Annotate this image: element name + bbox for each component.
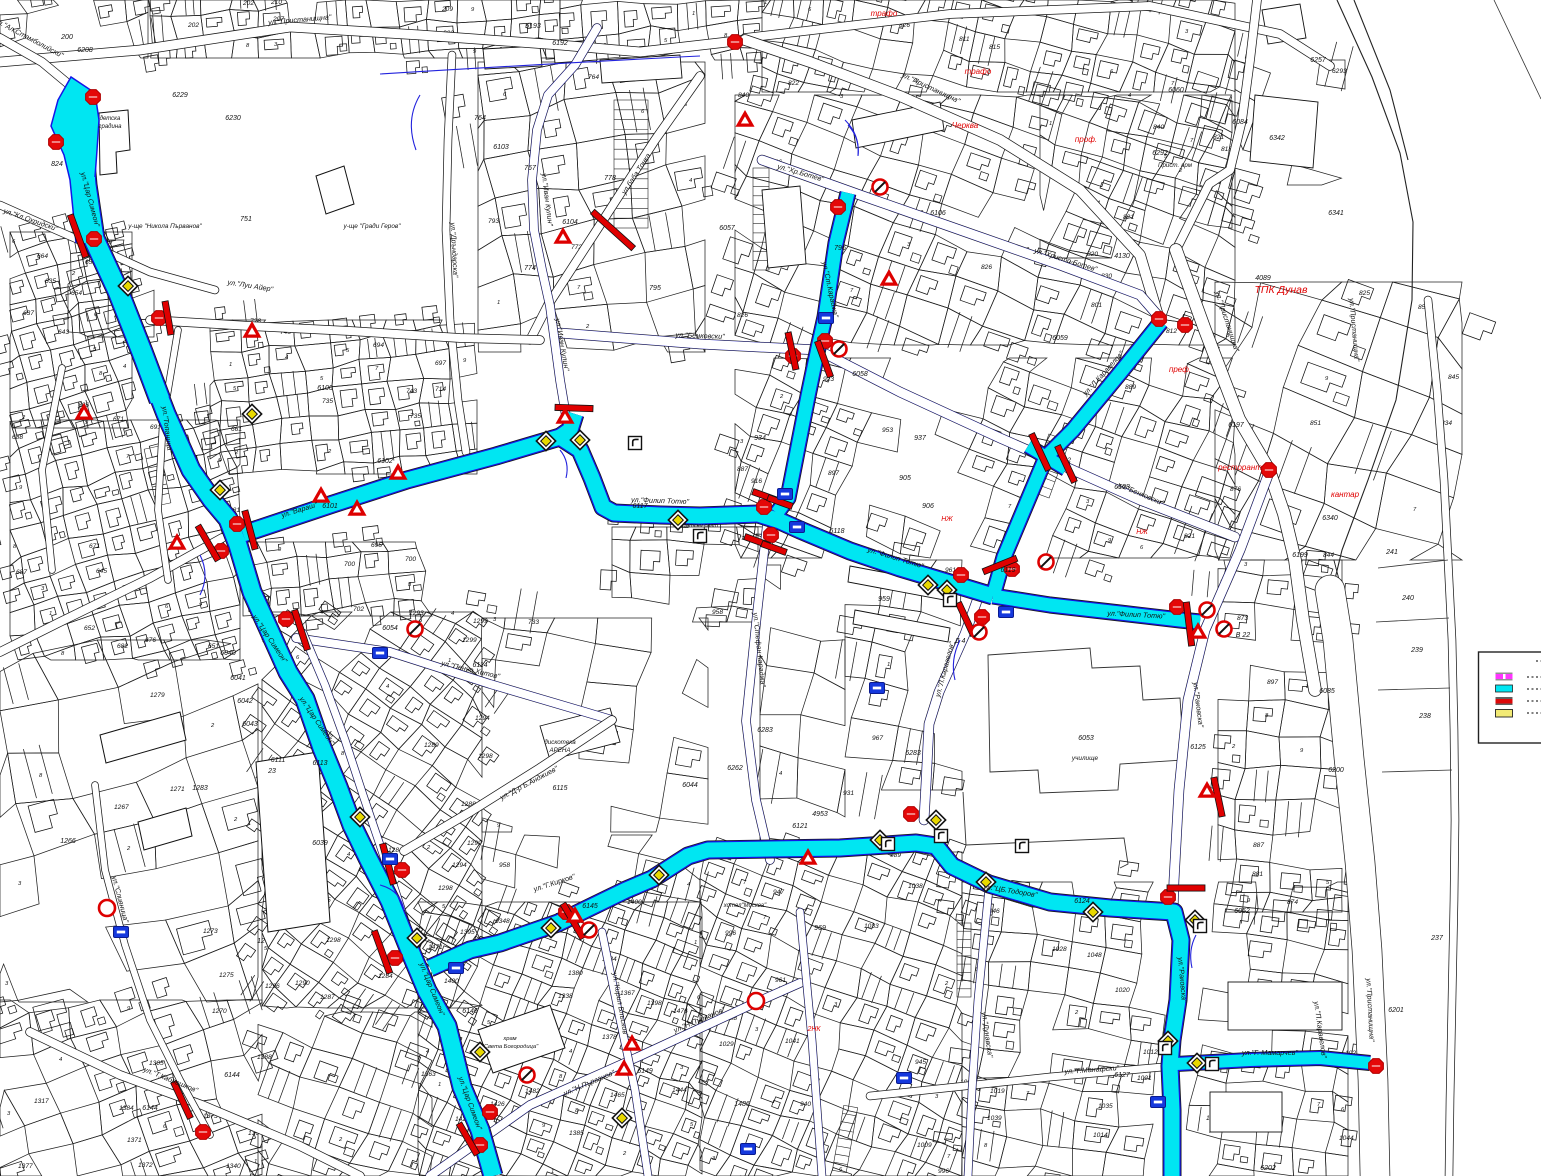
svg-text:947: 947 [773, 889, 784, 896]
svg-text:1020: 1020 [1115, 987, 1130, 994]
svg-text:967: 967 [872, 735, 883, 742]
svg-text:931: 931 [843, 790, 854, 797]
svg-text:1271: 1271 [170, 786, 185, 793]
svg-text:трафо: трафо [965, 67, 992, 76]
svg-text:1270: 1270 [212, 1008, 227, 1015]
svg-text:844: 844 [1323, 552, 1334, 559]
svg-text:764: 764 [588, 74, 599, 81]
svg-text:887: 887 [1253, 842, 1264, 849]
svg-text:826: 826 [737, 312, 748, 319]
svg-text:градина: градина [99, 124, 123, 130]
svg-text:6230: 6230 [225, 115, 241, 122]
svg-text:4: 4 [451, 611, 454, 617]
svg-text:996: 996 [938, 1168, 949, 1175]
svg-text:23: 23 [267, 768, 276, 775]
svg-text:6121: 6121 [792, 823, 808, 830]
svg-text:826: 826 [981, 264, 992, 271]
svg-text:751: 751 [240, 216, 252, 223]
svg-text:671: 671 [89, 543, 100, 550]
svg-text:6149: 6149 [637, 1068, 653, 1075]
svg-text:1: 1 [497, 300, 500, 306]
svg-text:1296: 1296 [265, 983, 280, 990]
svg-text:937: 937 [914, 435, 927, 442]
svg-text:1: 1 [49, 611, 52, 617]
svg-text:1465: 1465 [610, 1092, 625, 1099]
svg-text:1348: 1348 [495, 918, 510, 925]
svg-text:637: 637 [23, 310, 34, 317]
svg-text:1029: 1029 [719, 1041, 734, 1048]
svg-text:200: 200 [60, 34, 73, 41]
svg-text:796: 796 [834, 245, 846, 252]
svg-text:4: 4 [569, 1049, 572, 1055]
svg-text:6101: 6101 [322, 503, 338, 510]
svg-text:6293: 6293 [1332, 68, 1347, 75]
svg-text:1486: 1486 [734, 1101, 750, 1108]
svg-text:238: 238 [1418, 713, 1431, 720]
svg-text:1377: 1377 [18, 1163, 33, 1170]
svg-text:2НК: 2НК [806, 1026, 821, 1033]
svg-text:241: 241 [1385, 549, 1398, 556]
svg-text:874: 874 [1287, 899, 1298, 906]
svg-text:хотел"Москва": хотел"Москва" [723, 903, 767, 909]
svg-text:209: 209 [441, 6, 453, 13]
svg-text:945: 945 [915, 1059, 926, 1066]
svg-text:6059: 6059 [1052, 335, 1068, 342]
svg-text:916: 916 [751, 478, 762, 485]
svg-text:897: 897 [828, 470, 839, 477]
svg-text:кантар: кантар [1331, 490, 1360, 499]
svg-text:1298: 1298 [478, 753, 493, 760]
svg-text:ул."Бенковски": ул."Бенковски" [674, 330, 725, 341]
svg-text:1009: 1009 [917, 1142, 932, 1149]
svg-text:1014: 1014 [1093, 1132, 1108, 1139]
svg-text:6124: 6124 [1074, 898, 1090, 905]
svg-text:"Света Богородица": "Света Богородица" [482, 1044, 539, 1050]
svg-text:6229: 6229 [172, 92, 188, 99]
svg-text:996: 996 [725, 930, 736, 937]
svg-text:6039: 6039 [312, 840, 328, 847]
svg-text:1299: 1299 [473, 618, 488, 625]
svg-text:961: 961 [775, 977, 786, 984]
svg-text:детска: детска [100, 116, 121, 122]
svg-text:1041: 1041 [785, 1038, 800, 1045]
svg-text:851: 851 [1310, 420, 1321, 427]
svg-text:Прист. арм: Прист. арм [1158, 162, 1193, 169]
svg-text:ТПК Дунав: ТПК Дунав [1255, 284, 1309, 296]
svg-text:897: 897 [1267, 679, 1278, 686]
svg-text:4: 4 [687, 882, 690, 888]
svg-text:821: 821 [1213, 134, 1224, 141]
svg-text:202: 202 [187, 22, 199, 29]
svg-text:1019: 1019 [990, 1088, 1005, 1095]
svg-text:1385: 1385 [569, 1130, 584, 1137]
svg-text:6197: 6197 [1228, 422, 1245, 429]
svg-text:1340: 1340 [226, 1163, 241, 1170]
svg-text:училище: училище [1071, 755, 1099, 762]
svg-text:881: 881 [1252, 871, 1263, 878]
svg-text:664: 664 [37, 253, 48, 260]
svg-text:237: 237 [1430, 935, 1444, 942]
svg-text:6341: 6341 [1328, 210, 1344, 217]
svg-text:1279: 1279 [150, 692, 165, 699]
svg-text:6208: 6208 [77, 47, 93, 54]
svg-text:6042: 6042 [237, 698, 253, 705]
svg-text:1400: 1400 [627, 899, 642, 906]
svg-text:940: 940 [800, 1101, 811, 1108]
svg-text:845: 845 [1448, 374, 1459, 381]
svg-text:1048: 1048 [1087, 952, 1102, 959]
svg-text:Черква: Черква [952, 121, 979, 130]
svg-text:873: 873 [1237, 615, 1248, 622]
svg-text:812: 812 [1166, 328, 1177, 335]
svg-text:1: 1 [692, 11, 695, 17]
svg-text:6060: 6060 [1168, 87, 1184, 94]
svg-text:6144: 6144 [224, 1072, 240, 1079]
svg-text:6200: 6200 [1328, 767, 1344, 774]
svg-text:6119: 6119 [1000, 567, 1015, 574]
svg-text:4: 4 [386, 684, 389, 690]
svg-text:1384: 1384 [119, 1105, 134, 1112]
svg-text:700: 700 [344, 561, 355, 568]
svg-text:239: 239 [1410, 647, 1423, 654]
svg-text:6192: 6192 [552, 40, 568, 47]
svg-text:795: 795 [649, 285, 661, 292]
svg-text:6283: 6283 [905, 750, 921, 757]
svg-text:4: 4 [347, 852, 350, 858]
svg-text:6257: 6257 [1310, 57, 1327, 64]
svg-text:694: 694 [373, 342, 384, 349]
svg-text:733: 733 [528, 619, 539, 626]
svg-text:6201: 6201 [1388, 1007, 1404, 1014]
svg-text:ул."Г. Мамарчев": ул."Г. Мамарчев" [1241, 1048, 1298, 1057]
svg-text:815: 815 [989, 44, 1000, 51]
svg-text:6043: 6043 [242, 721, 258, 728]
svg-text:1: 1 [551, 1169, 554, 1175]
svg-text:774: 774 [524, 265, 536, 272]
svg-text:1028: 1028 [1052, 946, 1067, 953]
svg-text:1290: 1290 [295, 980, 310, 987]
svg-text:1299: 1299 [467, 840, 482, 847]
svg-text:1: 1 [438, 1082, 441, 1088]
svg-text:6054: 6054 [382, 625, 398, 632]
svg-text:887: 887 [737, 466, 748, 473]
svg-text:840: 840 [1153, 124, 1164, 131]
svg-text:4089: 4089 [1255, 275, 1271, 282]
svg-text:959: 959 [878, 596, 890, 603]
svg-text:1039: 1039 [987, 1115, 1002, 1122]
svg-text:1372: 1372 [138, 1162, 153, 1169]
svg-text:1266: 1266 [60, 838, 76, 845]
svg-text:825: 825 [1359, 290, 1370, 297]
svg-text:1317: 1317 [34, 1098, 49, 1105]
svg-text:654: 654 [71, 290, 82, 297]
svg-text:714: 714 [435, 386, 446, 393]
svg-text:1378: 1378 [602, 1034, 617, 1041]
svg-text:822: 822 [788, 80, 799, 87]
svg-text:202: 202 [242, 0, 254, 7]
svg-text:у-ще "Никола Първанов": у-ще "Никола Първанов" [127, 223, 202, 230]
svg-text:1363: 1363 [421, 1071, 436, 1078]
svg-text:1: 1 [229, 362, 232, 368]
svg-text:6202: 6202 [1260, 1165, 1276, 1172]
svg-text:1338: 1338 [558, 993, 573, 1000]
svg-text:1380: 1380 [568, 970, 583, 977]
svg-text:687: 687 [16, 569, 27, 576]
svg-text:6053: 6053 [1078, 735, 1094, 742]
svg-text:1293: 1293 [409, 610, 424, 617]
svg-text:преф.: преф. [1169, 365, 1191, 374]
svg-text:764: 764 [474, 115, 486, 122]
svg-text:240: 240 [1401, 595, 1414, 602]
svg-text:НЖ: НЖ [1136, 529, 1148, 536]
svg-text:6108: 6108 [1114, 484, 1130, 491]
svg-text:767: 767 [524, 165, 537, 172]
svg-text:6052: 6052 [1234, 908, 1250, 915]
svg-text:дискотека: дискотека [544, 739, 576, 746]
svg-text:6044: 6044 [682, 782, 698, 789]
svg-text:12: 12 [257, 938, 265, 945]
svg-text:645: 645 [96, 568, 107, 575]
svg-text:6115: 6115 [552, 785, 567, 792]
svg-text:6199: 6199 [1292, 552, 1308, 559]
svg-text:храм: храм [502, 1036, 516, 1042]
svg-text:4953: 4953 [812, 811, 828, 818]
svg-text:840: 840 [738, 92, 749, 99]
svg-text:4: 4 [779, 771, 782, 777]
svg-text:Детски свят: Детски свят [681, 523, 718, 529]
svg-text:трафо: трафо [871, 9, 898, 18]
svg-text:934: 934 [754, 435, 766, 442]
svg-text:1284: 1284 [378, 973, 393, 980]
svg-text:6104: 6104 [562, 219, 578, 226]
svg-text:671: 671 [113, 416, 124, 423]
svg-text:1398: 1398 [647, 1000, 662, 1007]
svg-text:1: 1 [254, 1159, 257, 1165]
svg-text:6084: 6084 [1232, 119, 1248, 126]
svg-text:1038: 1038 [908, 883, 923, 890]
svg-text:735: 735 [410, 413, 421, 420]
svg-text:1021: 1021 [1137, 1075, 1152, 1082]
svg-text:652: 652 [84, 625, 95, 632]
svg-text:6085: 6085 [1319, 688, 1335, 695]
svg-text:695: 695 [371, 542, 382, 549]
svg-text:6118: 6118 [829, 528, 844, 535]
svg-text:6058: 6058 [852, 371, 868, 378]
svg-text:820: 820 [1087, 251, 1098, 258]
svg-text:4130: 4130 [1114, 253, 1130, 260]
svg-text:210: 210 [270, 0, 282, 6]
svg-text:889: 889 [1125, 384, 1136, 391]
svg-text:АРЕНА: АРЕНА [549, 747, 571, 754]
svg-text:4: 4 [123, 364, 126, 370]
svg-text:6292: 6292 [1152, 150, 1168, 157]
svg-text:6057: 6057 [719, 225, 736, 232]
svg-text:1283: 1283 [192, 785, 208, 792]
svg-text:906: 906 [922, 503, 934, 510]
svg-text:6114: 6114 [472, 662, 487, 669]
svg-text:688: 688 [12, 434, 23, 441]
svg-text:969: 969 [814, 925, 826, 932]
svg-text:6125: 6125 [1190, 744, 1206, 751]
svg-text:958: 958 [499, 862, 510, 869]
svg-text:1294: 1294 [452, 862, 467, 869]
svg-text:1400: 1400 [444, 978, 459, 985]
svg-text:676: 676 [145, 637, 156, 644]
svg-text:778: 778 [604, 175, 616, 182]
svg-text:проф.: проф. [1075, 135, 1097, 144]
svg-text:635: 635 [45, 278, 56, 285]
svg-text:811: 811 [959, 36, 970, 43]
svg-text:6103: 6103 [493, 144, 509, 151]
svg-text:6102: 6102 [377, 458, 393, 465]
svg-text:1289: 1289 [424, 742, 439, 749]
svg-text:ресторант: ресторант [1217, 463, 1262, 472]
svg-text:1012: 1012 [1143, 1049, 1158, 1056]
svg-text:702: 702 [353, 606, 364, 613]
svg-text:1: 1 [887, 662, 890, 668]
svg-text:905: 905 [899, 475, 911, 482]
svg-text:1299: 1299 [462, 637, 477, 644]
svg-text:6041: 6041 [230, 675, 246, 682]
svg-text:1298: 1298 [326, 937, 341, 944]
svg-text:1033: 1033 [864, 923, 879, 930]
svg-text:НЖ: НЖ [941, 516, 953, 523]
svg-text:1471: 1471 [428, 944, 443, 951]
svg-text:824: 824 [51, 161, 63, 168]
svg-text:1044: 1044 [1339, 1135, 1354, 1142]
svg-text:1298: 1298 [438, 885, 453, 892]
svg-text:4: 4 [285, 355, 288, 361]
svg-text:6040: 6040 [220, 650, 236, 657]
svg-text:1395: 1395 [460, 929, 475, 936]
svg-text:6145: 6145 [582, 903, 598, 910]
svg-text:1482: 1482 [525, 1088, 540, 1095]
svg-text:1287: 1287 [320, 994, 335, 1001]
svg-text:6342: 6342 [1269, 135, 1285, 142]
svg-text:793: 793 [488, 218, 499, 225]
svg-text:6111: 6111 [271, 757, 286, 764]
svg-text:958: 958 [712, 609, 723, 616]
svg-text:6127: 6127 [1114, 1072, 1131, 1079]
svg-text:6340: 6340 [1322, 515, 1338, 522]
svg-text:801: 801 [1091, 302, 1102, 309]
svg-text:6117: 6117 [632, 503, 648, 510]
svg-text:953: 953 [882, 427, 893, 434]
svg-text:6106: 6106 [930, 210, 946, 217]
svg-text:В 22: В 22 [1236, 632, 1251, 639]
svg-text:6283: 6283 [757, 727, 773, 734]
svg-text:6100: 6100 [317, 385, 333, 392]
svg-text:921: 921 [1184, 533, 1195, 540]
svg-text:735: 735 [322, 398, 333, 405]
svg-text:у-ще "Гради Геров": у-ще "Гради Геров" [343, 222, 402, 230]
svg-text:6113: 6113 [312, 760, 327, 767]
svg-text:4: 4 [59, 1057, 62, 1063]
svg-text:700: 700 [405, 556, 416, 563]
svg-text:1267: 1267 [114, 804, 129, 811]
svg-text:697: 697 [435, 360, 446, 367]
svg-text:6146: 6146 [462, 1008, 478, 1015]
svg-text:6262: 6262 [727, 765, 743, 772]
svg-text:1035: 1035 [1098, 1103, 1113, 1110]
svg-text:4: 4 [426, 1049, 429, 1055]
svg-text:743: 743 [406, 388, 417, 395]
svg-text:1273: 1273 [203, 928, 218, 935]
svg-text:1: 1 [1049, 121, 1052, 127]
svg-text:682: 682 [117, 643, 128, 650]
svg-text:876: 876 [1230, 486, 1241, 493]
svg-text:1294: 1294 [475, 715, 490, 722]
svg-text:6193: 6193 [525, 23, 541, 30]
svg-text:6144: 6144 [142, 1105, 158, 1112]
svg-text:1275: 1275 [219, 972, 234, 979]
svg-text:1: 1 [764, 0, 767, 6]
svg-text:1371: 1371 [127, 1137, 142, 1144]
svg-text:4: 4 [689, 178, 692, 184]
